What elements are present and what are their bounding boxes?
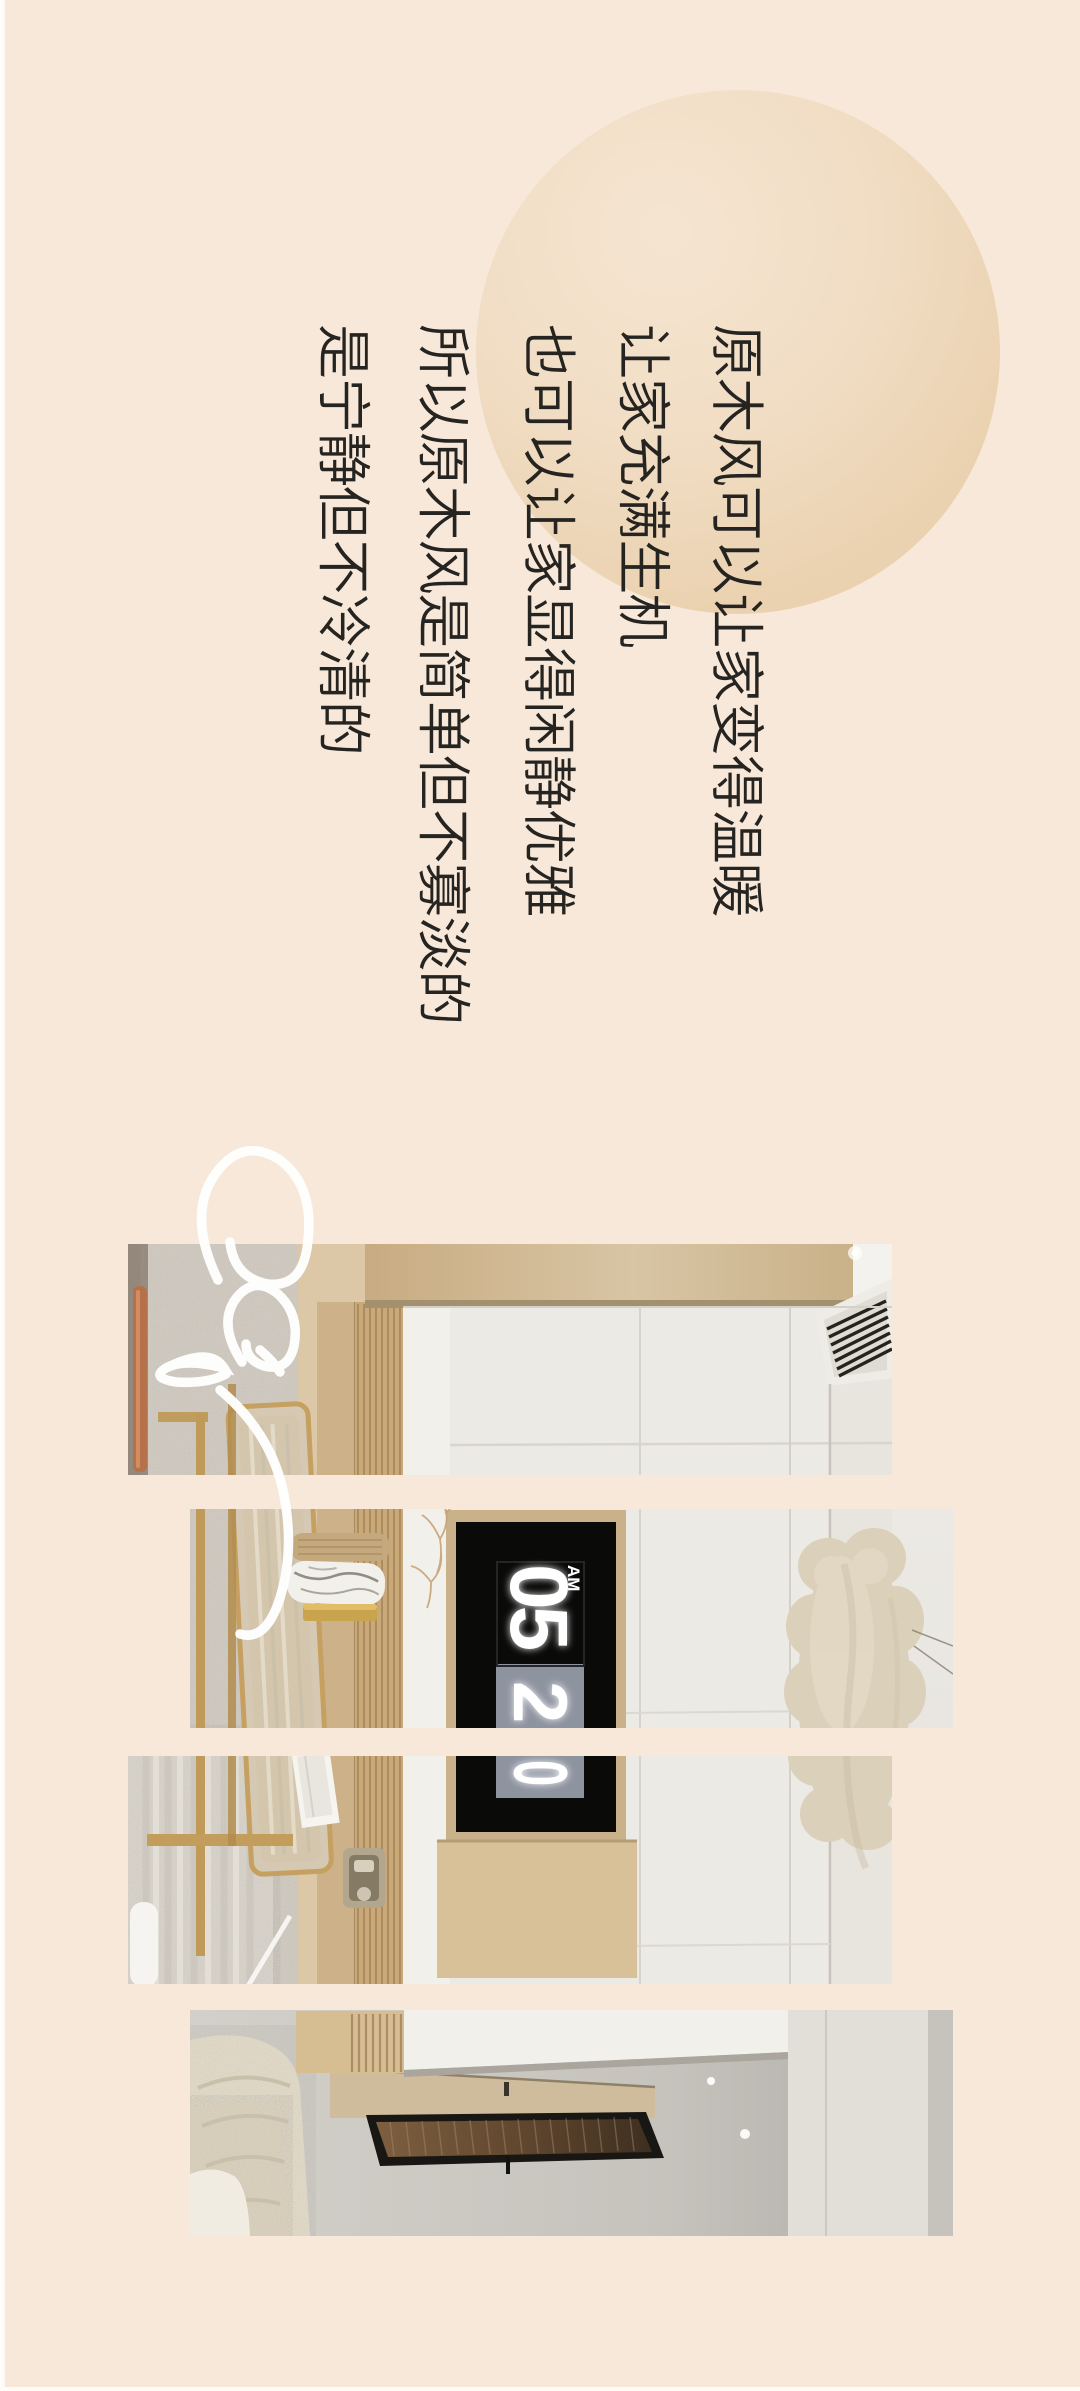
svg-text:0: 0 — [497, 1760, 581, 1786]
svg-text:2: 2 — [497, 1681, 582, 1723]
svg-text:AM: AM — [564, 1565, 583, 1591]
